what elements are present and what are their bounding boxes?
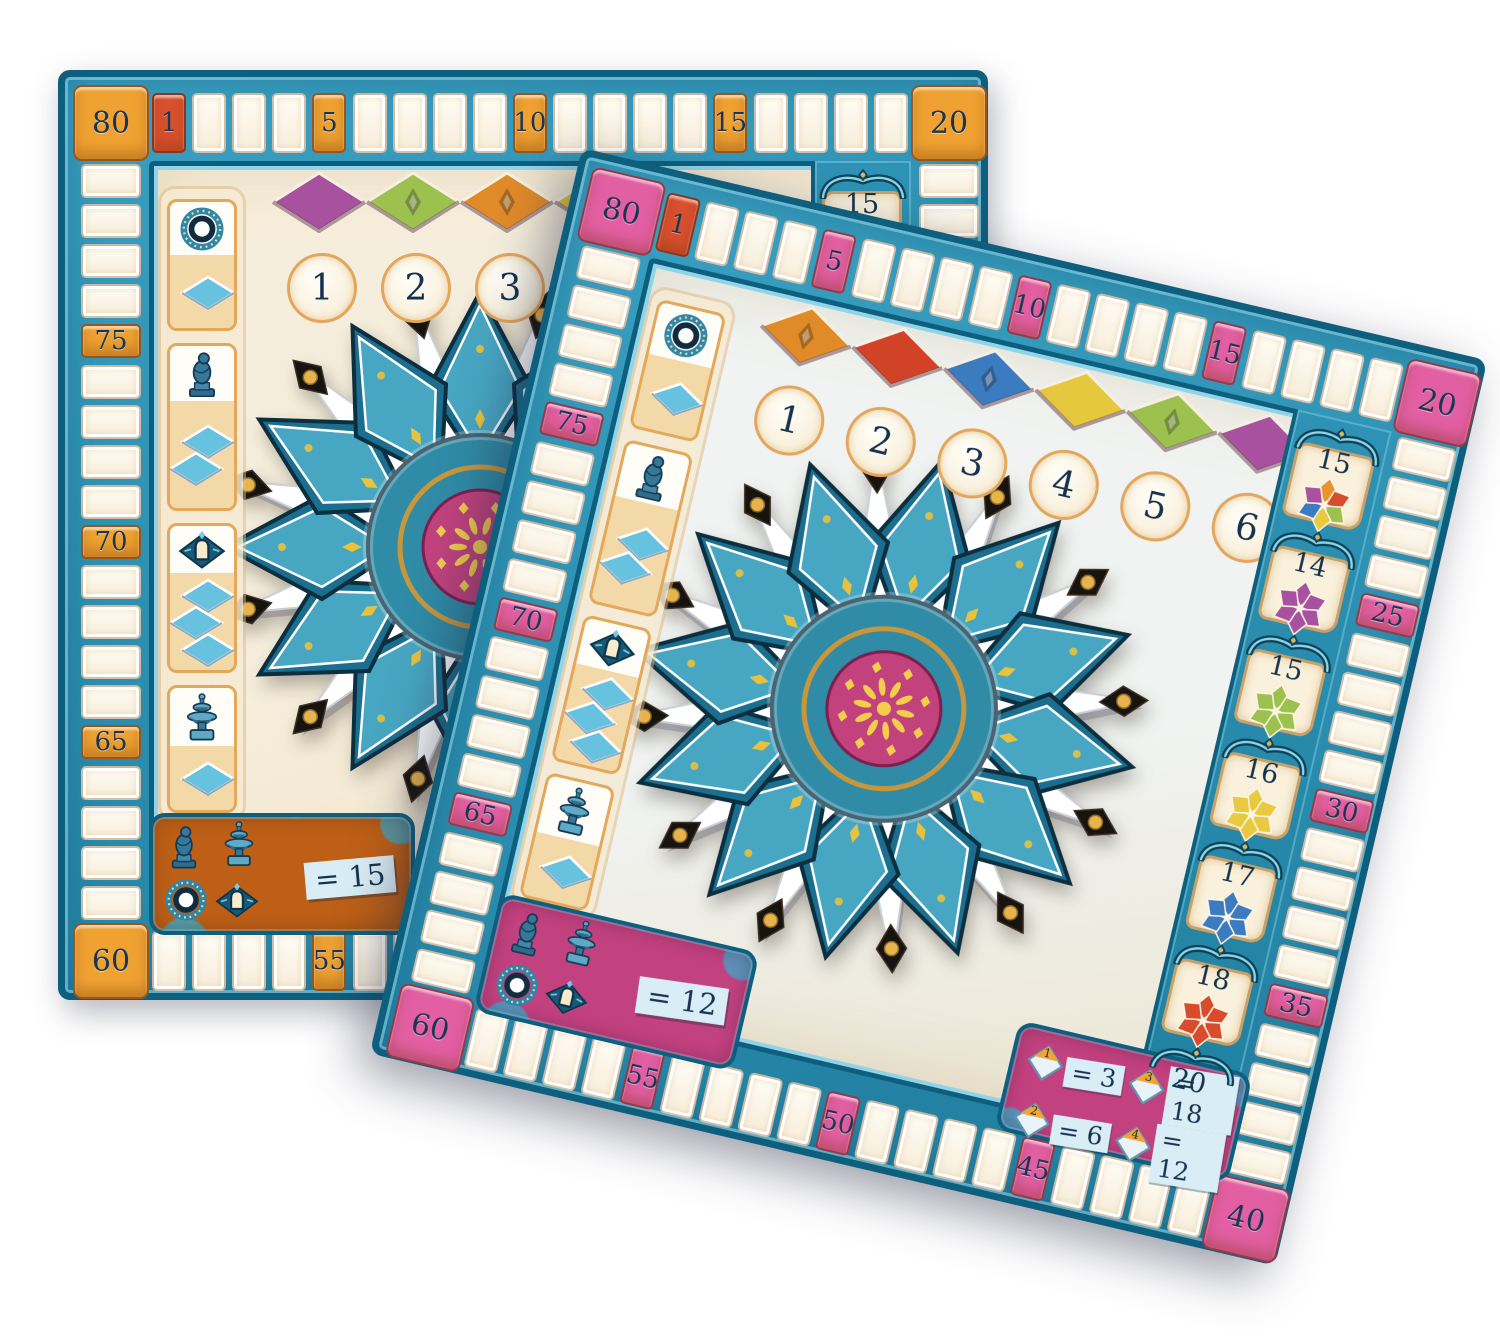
score-space <box>1045 283 1092 349</box>
bonus-badge-value: 14 <box>1290 550 1329 583</box>
score-space <box>353 931 387 991</box>
score-space <box>81 605 141 639</box>
fountain-icon <box>221 821 257 868</box>
numbered-diamond-icon: 4 <box>1109 1121 1156 1171</box>
score-space <box>1240 329 1287 395</box>
score-space <box>473 93 507 153</box>
score-space <box>1281 905 1347 952</box>
score-space <box>192 93 226 153</box>
pillar-ring-slot <box>659 304 714 366</box>
score-space <box>1290 866 1356 913</box>
conversion-value: = 12 <box>1148 1124 1227 1193</box>
score-space <box>511 518 577 565</box>
tile-diamond <box>170 607 222 639</box>
statue-slot <box>631 446 675 507</box>
pillar-ring-icon <box>165 879 207 921</box>
score-space-75: 75 <box>539 401 605 448</box>
statue-icon <box>169 825 199 869</box>
window-panel-icon <box>215 883 259 922</box>
conversion-value: = 6 <box>1049 1114 1112 1153</box>
score-space-80: 80 <box>73 85 149 161</box>
rim-diamond <box>876 924 907 973</box>
window-panel-icon <box>540 975 592 1023</box>
score-space-65: 65 <box>447 791 513 838</box>
tile-diamond <box>182 277 234 309</box>
score-space <box>889 247 936 313</box>
score-space <box>1345 631 1411 678</box>
landmark-column <box>161 189 243 819</box>
score-space <box>484 635 550 682</box>
score-space <box>633 93 667 153</box>
score-space-60: 60 <box>73 923 149 999</box>
score-space-10: 10 <box>1006 274 1053 340</box>
score-space <box>520 479 586 526</box>
score-space <box>694 201 741 267</box>
statue-icon <box>508 908 547 957</box>
score-space <box>81 806 141 840</box>
bonus-badge: 17 <box>1178 829 1292 953</box>
statue-icon <box>186 351 218 397</box>
score-space <box>81 405 141 439</box>
landmark-cell-window <box>167 523 237 673</box>
statue-panel-icon <box>169 825 199 873</box>
score-space <box>967 265 1014 331</box>
score-space-70: 70 <box>81 525 141 559</box>
bonus-badge: 14 <box>1250 519 1364 643</box>
tile-cost-zone <box>554 664 638 773</box>
tile-diamond <box>182 580 234 612</box>
score-space <box>1279 338 1326 404</box>
bonus-badge: 16 <box>1202 725 1316 849</box>
score-space <box>474 674 540 721</box>
numbered-diamond-icon: 2 <box>1008 1097 1055 1147</box>
score-space <box>1327 709 1393 756</box>
score-space <box>529 440 595 487</box>
score-space-30: 30 <box>1309 788 1375 835</box>
score-space <box>772 219 819 285</box>
landmark-score-value: = 12 <box>635 976 730 1026</box>
score-space <box>81 284 141 318</box>
fountain-slot <box>183 688 221 746</box>
score-space-55: 55 <box>312 931 346 991</box>
score-space <box>548 362 614 409</box>
score-space-50: 50 <box>815 1090 862 1156</box>
window-icon <box>541 975 592 1019</box>
landmark-cell-fountain <box>167 685 237 813</box>
window-icon <box>215 883 259 918</box>
score-space <box>593 93 627 153</box>
bonus-badge-value: 20 <box>1169 1066 1208 1099</box>
score-space <box>81 766 141 800</box>
score-space <box>1318 748 1384 795</box>
score-space <box>566 284 632 331</box>
tile-diamond <box>182 634 234 666</box>
window-icon <box>178 531 226 569</box>
window-slot <box>178 526 226 573</box>
score-space <box>733 210 780 276</box>
tile-cost-zone <box>170 746 234 810</box>
fountain-icon <box>550 783 598 840</box>
bonus-badge-value: 16 <box>1242 756 1281 789</box>
tile-diamond <box>182 763 234 795</box>
tile-cost-zone <box>170 401 234 508</box>
cost-number-circle: 3 <box>475 253 545 323</box>
score-space <box>1272 944 1338 991</box>
score-space <box>834 93 868 153</box>
score-space <box>456 752 522 799</box>
score-space <box>1244 1061 1310 1108</box>
score-space <box>81 565 141 599</box>
score-space-25: 25 <box>1354 592 1420 639</box>
bonus-badge: 15 <box>1226 622 1340 746</box>
score-space <box>81 445 141 479</box>
score-space <box>81 365 141 399</box>
score-space <box>438 830 504 877</box>
score-space <box>1123 302 1170 368</box>
score-space <box>232 93 266 153</box>
pillar-ring-icon <box>492 960 542 1010</box>
landmark-cell-statue <box>167 343 237 511</box>
score-space <box>152 931 186 991</box>
score-space <box>272 93 306 153</box>
score-space <box>1382 475 1448 522</box>
score-space <box>553 93 587 153</box>
tile-diamond <box>170 453 222 485</box>
cost-row-diamond <box>459 171 555 233</box>
window-icon <box>585 624 640 672</box>
score-space <box>353 93 387 153</box>
score-space <box>1318 348 1365 414</box>
score-space <box>1084 293 1131 359</box>
bonus-badge-value: 18 <box>1193 962 1232 995</box>
score-space-5: 5 <box>312 93 346 153</box>
score-space <box>1254 1022 1320 1069</box>
score-space <box>673 93 707 153</box>
pillar-ring-panel-icon <box>165 879 207 925</box>
score-space <box>465 713 531 760</box>
score-space <box>928 256 975 322</box>
score-space <box>919 164 979 198</box>
score-space <box>81 685 141 719</box>
pillar-ring-icon <box>180 207 224 251</box>
score-space <box>81 244 141 278</box>
pillar-ring-panel-icon <box>491 960 542 1014</box>
tile-cost-zone <box>591 496 678 614</box>
tile-cost-zone <box>632 354 711 440</box>
score-space <box>81 485 141 519</box>
bonus-badge: 18 <box>1154 932 1268 1056</box>
fountain-slot <box>549 778 599 844</box>
numbered-diamond-icon: 1 <box>1021 1040 1068 1090</box>
statue-slot <box>186 346 218 401</box>
score-space <box>754 93 788 153</box>
score-space <box>393 93 427 153</box>
score-space <box>429 869 495 916</box>
game-boards-render: 80151015205560657075 <box>0 0 1500 1339</box>
conversion-value: = 3 <box>1062 1056 1125 1095</box>
score-space <box>502 557 568 604</box>
score-space <box>433 93 467 153</box>
score-space-65: 65 <box>81 725 141 759</box>
cost-row-diamond <box>271 171 367 233</box>
score-space-20: 20 <box>911 85 987 161</box>
numbered-diamond-icon: 3 <box>1123 1063 1170 1113</box>
bonus-badge-value: 15 <box>1314 446 1353 479</box>
score-space-75: 75 <box>81 324 141 358</box>
score-space <box>81 164 141 198</box>
score-space <box>932 1118 979 1184</box>
landmark-cell-pillar-ring <box>167 199 237 331</box>
score-space-1: 1 <box>152 93 186 153</box>
score-space-70: 70 <box>493 596 559 643</box>
score-space <box>419 909 485 956</box>
score-space-60: 60 <box>384 982 475 1073</box>
score-space <box>854 1099 901 1165</box>
score-space <box>737 1072 784 1138</box>
score-space-80: 80 <box>576 166 667 257</box>
score-space <box>81 886 141 920</box>
score-space-35: 35 <box>1263 983 1329 1030</box>
tile-diamond <box>182 426 234 458</box>
statue-panel-icon <box>507 908 547 961</box>
landmark-score-panel: = 15 <box>149 813 415 935</box>
cost-number-circle: 2 <box>381 253 451 323</box>
bonus-badge: 15 <box>1275 416 1389 540</box>
score-space <box>1336 670 1402 717</box>
score-space <box>81 204 141 238</box>
cost-number-circle: 1 <box>287 253 357 323</box>
score-space-10: 10 <box>513 93 547 153</box>
score-space <box>1364 553 1430 600</box>
fountain-icon <box>559 916 605 970</box>
score-space <box>232 931 266 991</box>
cost-row-diamond <box>365 171 461 233</box>
tile-cost-zone <box>170 255 234 328</box>
fountain-panel-icon <box>558 916 605 974</box>
score-space-20: 20 <box>1392 357 1483 448</box>
score-space-15: 15 <box>1201 320 1248 386</box>
pillar-ring-icon <box>659 309 712 362</box>
score-space <box>874 93 908 153</box>
score-space <box>850 238 897 304</box>
bonus-badge-value: 17 <box>1217 859 1256 892</box>
pillar-ring-slot <box>180 202 224 255</box>
fountain-panel-icon <box>221 821 257 872</box>
fountain-icon <box>183 693 221 742</box>
score-space <box>81 645 141 679</box>
score-space <box>1373 514 1439 561</box>
score-space-5: 5 <box>811 228 858 294</box>
score-space <box>794 93 828 153</box>
score-space <box>697 1063 744 1129</box>
score-space <box>1299 827 1365 874</box>
tile-cost-zone <box>522 832 599 909</box>
landmark-score-value: = 15 <box>304 855 397 900</box>
score-space <box>776 1081 823 1147</box>
score-space <box>893 1108 940 1174</box>
score-space <box>272 931 306 991</box>
statue-icon <box>632 451 674 503</box>
tile-cost-zone <box>170 573 234 670</box>
score-space-15: 15 <box>713 93 747 153</box>
score-space <box>81 846 141 880</box>
score-space <box>1162 311 1209 377</box>
score-space <box>192 931 226 991</box>
score-space <box>557 323 623 370</box>
bonus-badge-value: 15 <box>1266 653 1305 686</box>
score-conversion-entry: 1= 3 <box>1021 1040 1127 1103</box>
